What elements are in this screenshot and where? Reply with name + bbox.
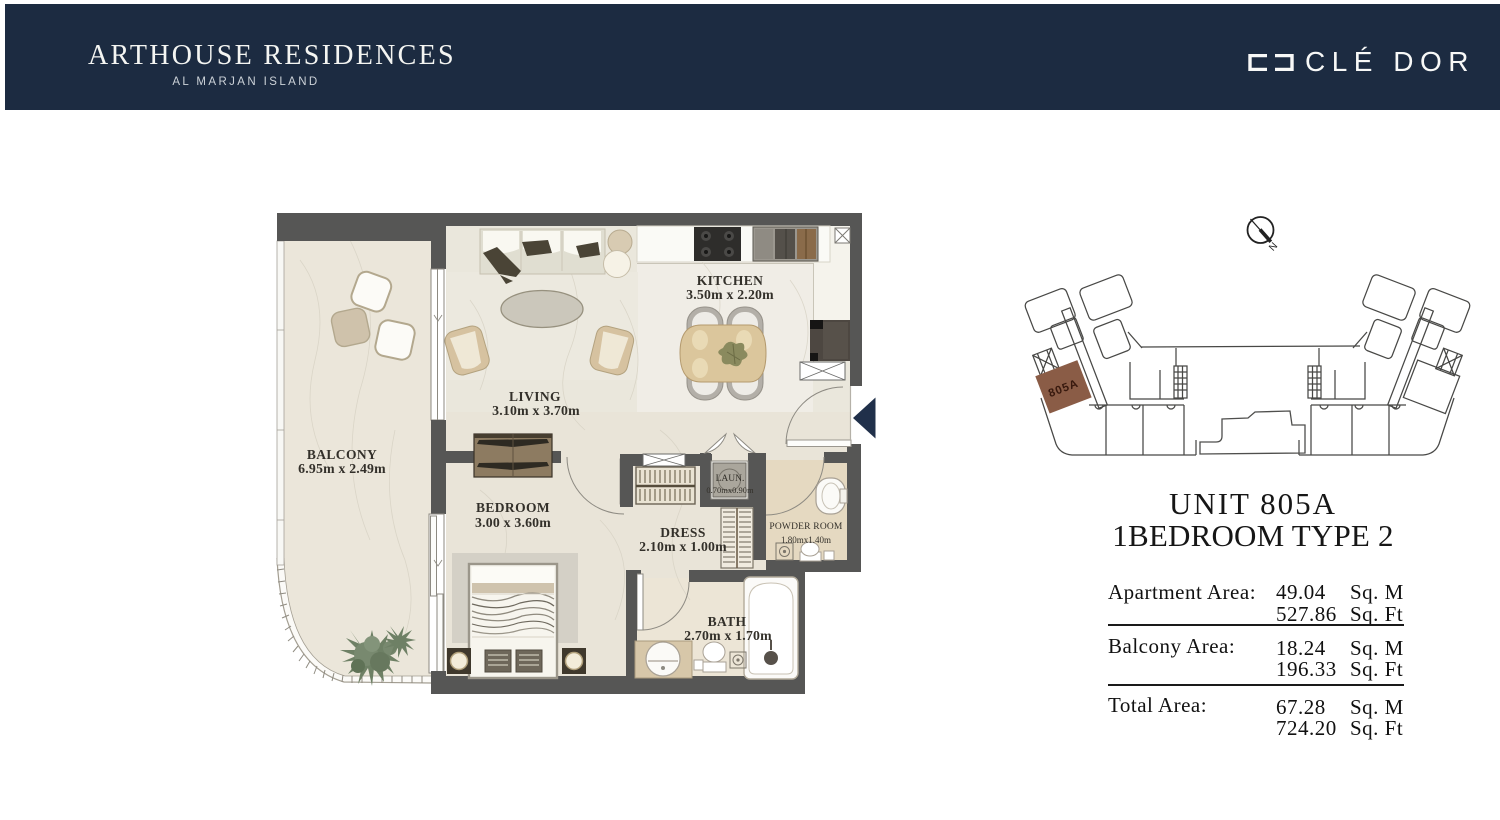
svg-text:KITCHEN: KITCHEN [697,273,764,288]
svg-text:0.70mx0.90m: 0.70mx0.90m [706,485,754,495]
svg-text:2.10m x 1.00m: 2.10m x 1.00m [639,539,727,554]
svg-text:3.10m x 3.70m: 3.10m x 3.70m [492,403,580,418]
svg-text:LAUN.: LAUN. [716,474,745,484]
svg-text:6.95m x 2.49m: 6.95m x 2.49m [298,461,386,476]
svg-text:3.00 x 3.60m: 3.00 x 3.60m [475,515,551,530]
svg-text:2.70m x 1.70m: 2.70m x 1.70m [684,628,772,643]
svg-text:3.50m x 2.20m: 3.50m x 2.20m [686,287,774,302]
svg-text:N: N [1267,241,1280,254]
svg-text:BALCONY: BALCONY [307,447,377,462]
svg-text:BATH: BATH [708,614,747,629]
svg-text:BEDROOM: BEDROOM [476,500,550,515]
svg-text:1.80mx1.40m: 1.80mx1.40m [781,535,831,545]
svg-text:LIVING: LIVING [509,389,561,404]
svg-text:DRESS: DRESS [660,525,706,540]
svg-text:POWDER ROOM: POWDER ROOM [769,522,843,532]
